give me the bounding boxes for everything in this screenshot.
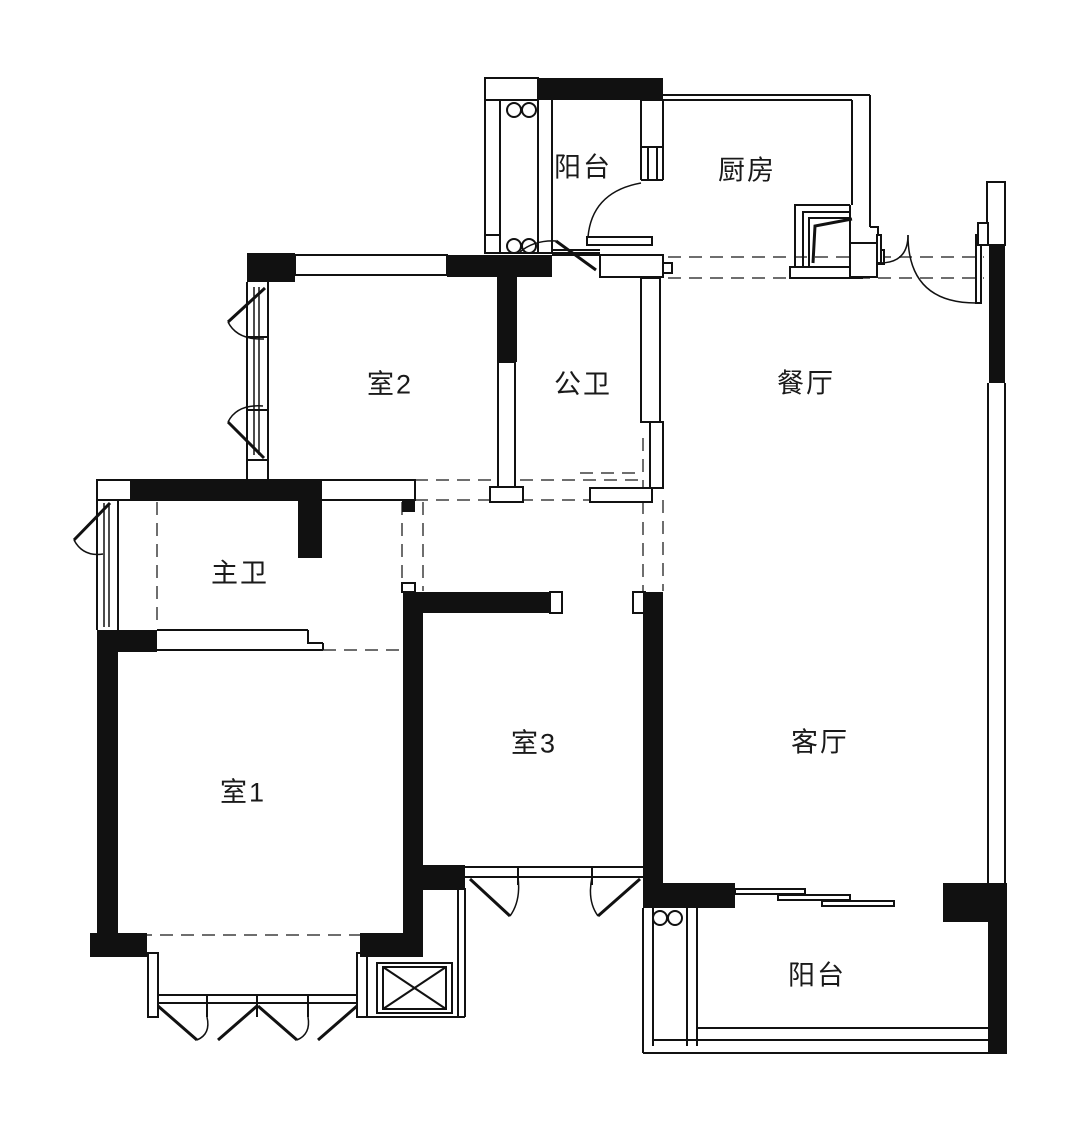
- room-label-living-room: 客厅: [791, 721, 849, 760]
- room-label-balcony-top: 阳台: [554, 146, 612, 185]
- entry-door: [877, 235, 981, 303]
- room-label-balcony-bottom: 阳台: [788, 954, 846, 993]
- sliding-door: [735, 889, 894, 906]
- room-label-public-bath: 公卫: [554, 363, 612, 402]
- room-label-master-bath: 主卫: [211, 552, 269, 591]
- top-balcony-door: [587, 183, 652, 245]
- floor-plan: 阳台 厨房 室2 公卫 餐厅 主卫 室1 室3 客厅 阳台: [0, 0, 1080, 1131]
- bedroom-3-doors: [465, 867, 643, 916]
- living-room-window-wall: [988, 383, 1005, 883]
- room-label-bedroom-1: 室1: [220, 771, 266, 810]
- room-label-bedroom-2: 室2: [367, 363, 413, 402]
- bedroom-2-window-wall: [228, 282, 268, 480]
- room-label-dining-room: 餐厅: [777, 362, 835, 401]
- floor-plan-drawing: [0, 0, 1080, 1131]
- balcony-kitchen-window: [641, 100, 663, 180]
- bedroom-1-folding-window: [158, 995, 357, 1040]
- room-label-kitchen: 厨房: [718, 149, 776, 188]
- master-bath-window-wall: [74, 500, 118, 630]
- room-label-bedroom-3: 室3: [511, 722, 557, 761]
